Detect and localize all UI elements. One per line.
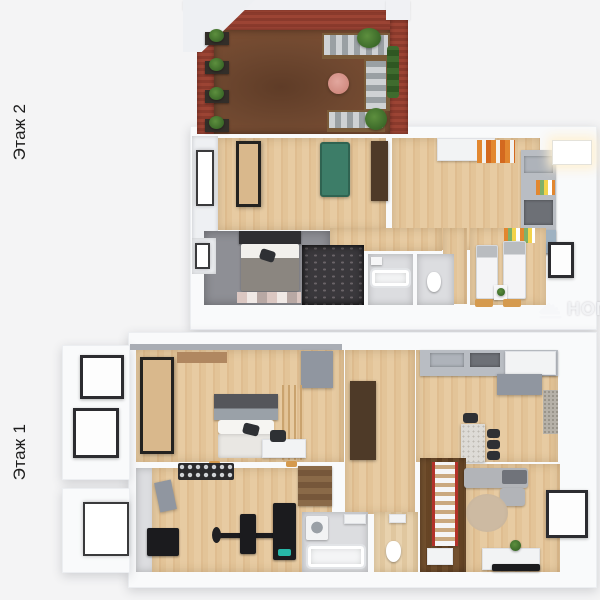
gym-station [147, 528, 179, 556]
gym-cabinet [298, 466, 332, 506]
kitchen1-chair [463, 413, 478, 423]
kitchen1-backsplash [543, 390, 558, 434]
corridor1-wardrobe [350, 381, 376, 460]
kitchen1-stool [487, 451, 500, 460]
bedroom1-headboard [214, 394, 278, 420]
gym-dumbbell-rack [178, 463, 234, 480]
door-mat [286, 461, 297, 467]
living1-window [546, 490, 588, 538]
kitchen1-hood [497, 374, 542, 395]
bedroom1-bay-window-2 [73, 408, 119, 458]
living1-plant [510, 540, 521, 551]
wc1-sink [389, 514, 406, 523]
floor1-plan [0, 0, 600, 600]
bedroom1-cabinet [301, 351, 333, 388]
bedroom1-ceiling-vent [177, 352, 227, 363]
watermark: HOM [538, 296, 600, 320]
kitchen1-sink [430, 353, 464, 367]
bedroom1-bay-window-1 [80, 355, 124, 399]
living1-sofa-cushions [502, 470, 527, 484]
bathroom1-tub [306, 544, 366, 569]
bedroom1-desk [262, 439, 306, 458]
bathroom1-sink [344, 514, 366, 524]
bedroom1-chair [270, 430, 286, 442]
staircase [432, 462, 458, 546]
kitchen1-stove [470, 353, 500, 367]
homestyler-fan-icon [538, 296, 564, 320]
living1-tv [492, 564, 540, 571]
living1-rug [466, 494, 508, 532]
kitchen1-stool [487, 429, 500, 438]
gym-plate-left [212, 527, 221, 543]
gym-bay-window [83, 502, 129, 556]
wc1-toilet [386, 541, 401, 562]
gym-bench-press [240, 514, 256, 554]
bedroom1-open-window [140, 357, 174, 454]
floorplan-canvas: Этаж 2 Этаж 1 HOM [0, 0, 600, 600]
gym-treadmill-screen [278, 549, 291, 556]
stair-landing [427, 548, 453, 565]
kitchen1-stool [487, 440, 500, 449]
kitchen1-island [461, 424, 485, 462]
bathroom1-washer [306, 516, 328, 540]
watermark-text: HOM [567, 299, 600, 320]
kitchen1-counter-white [505, 351, 556, 375]
